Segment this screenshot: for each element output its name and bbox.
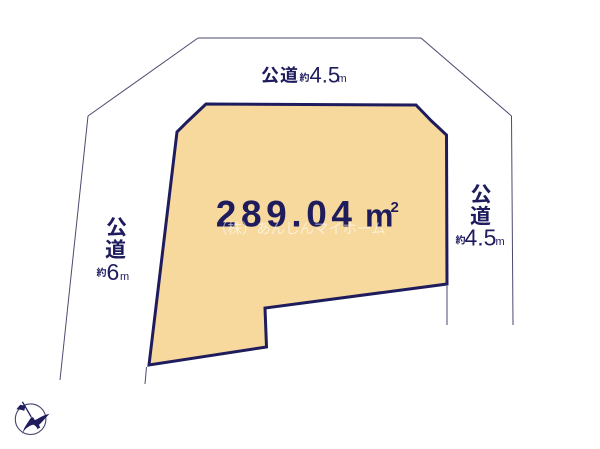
svg-text:4.5: 4.5 [465, 225, 497, 251]
svg-text:m: m [120, 271, 129, 283]
svg-text:2: 2 [391, 199, 399, 216]
svg-text:6: 6 [107, 259, 120, 285]
svg-text:m: m [338, 73, 347, 85]
svg-text:4.5: 4.5 [310, 63, 341, 88]
svg-text:m: m [496, 236, 505, 248]
